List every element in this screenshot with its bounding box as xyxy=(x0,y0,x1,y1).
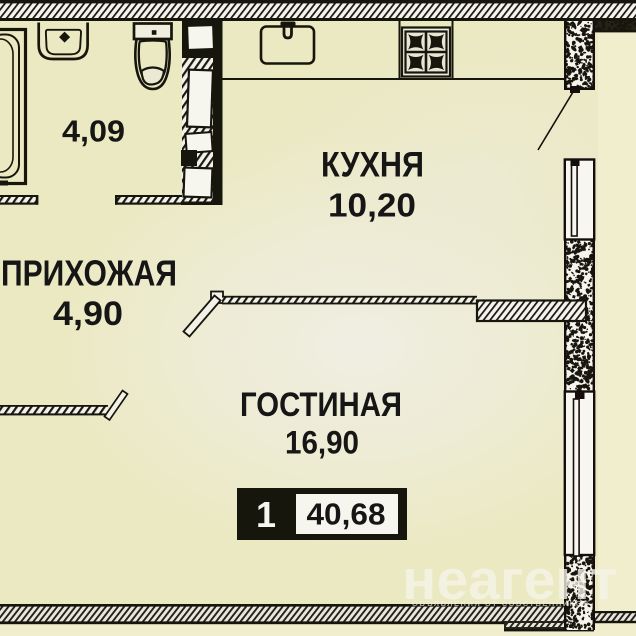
svg-text:ГОСТИНАЯ: ГОСТИНАЯ xyxy=(240,386,402,424)
svg-text:ОБЪЯВЛЕНИЯ ОТ СОБСТВЕННИКОВ: ОБЪЯВЛЕНИЯ ОТ СОБСТВЕННИКОВ xyxy=(412,599,590,608)
svg-text:4,09: 4,09 xyxy=(62,114,125,149)
svg-text:КУХНЯ: КУХНЯ xyxy=(321,145,424,185)
svg-text:16,90: 16,90 xyxy=(285,425,359,461)
svg-text:4,90: 4,90 xyxy=(53,295,123,333)
svg-text:40,68: 40,68 xyxy=(307,497,386,532)
svg-text:10,20: 10,20 xyxy=(328,187,416,224)
svg-text:1: 1 xyxy=(256,494,276,535)
svg-text:ПРИХОЖАЯ: ПРИХОЖАЯ xyxy=(1,252,177,293)
